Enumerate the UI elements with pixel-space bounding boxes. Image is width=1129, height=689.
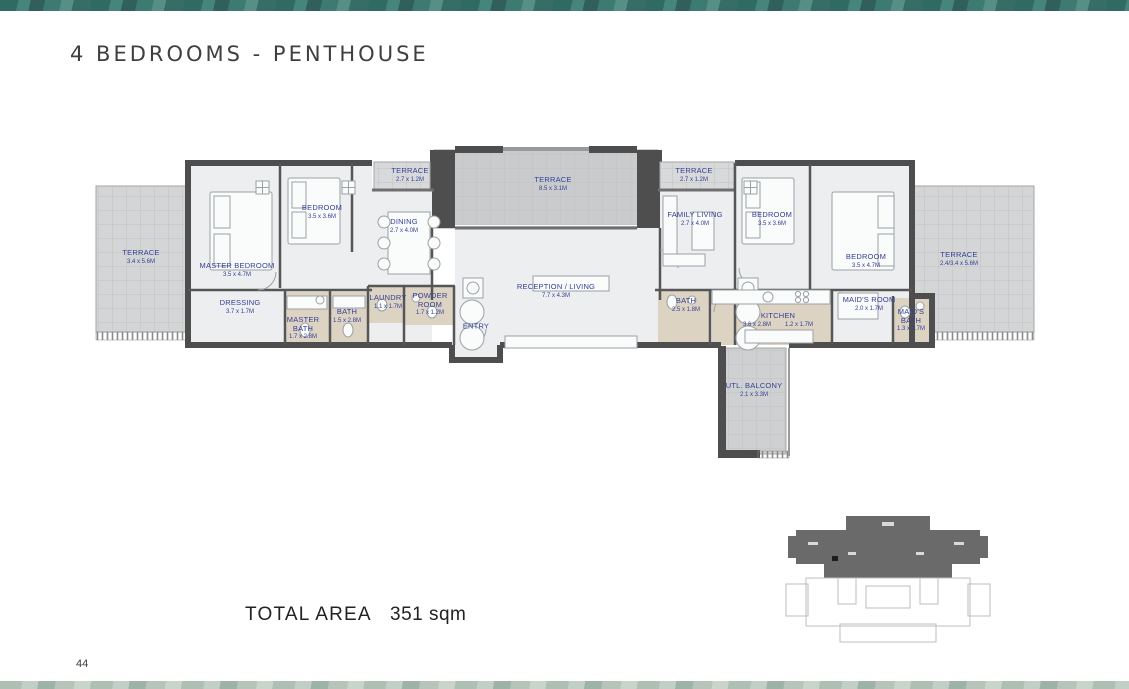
bottom-teal-band (0, 681, 1129, 689)
total-area-value: 351 sqm (390, 604, 466, 626)
terrace-top-left-floor (374, 162, 430, 190)
floorplan-svg (0, 0, 1129, 689)
total-area-row: TOTAL AREA 351 sqm (245, 604, 372, 626)
terrace-center-floor (430, 146, 662, 228)
floorplan: TERRACE 3.4 x 5.6M MASTER BEDROOM 3.5 x … (0, 0, 1129, 689)
page-number: 44 (76, 658, 88, 670)
terrace-top-right-floor (660, 162, 734, 190)
total-area-label: TOTAL AREA (245, 604, 372, 625)
utility-balcony-floor (718, 346, 789, 458)
brochure-page: 4 BEDROOMS - PENTHOUSE (0, 0, 1129, 689)
key-plan (786, 516, 990, 642)
